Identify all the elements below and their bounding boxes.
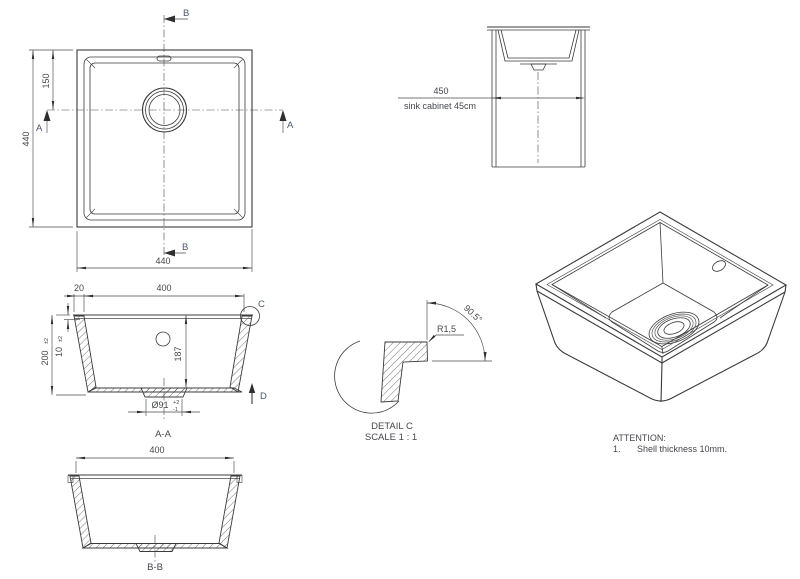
section-bb-view: 400 B-B	[68, 445, 242, 573]
iso-body	[536, 284, 786, 402]
dim-text-440-side: 440	[21, 131, 31, 146]
dim-text-400-aa: 400	[156, 283, 171, 293]
plan-corner-chamfers	[87, 60, 243, 218]
plan-outer-edge	[77, 50, 252, 227]
detail-radius-dim: R1,5	[428, 324, 464, 343]
detail-c-view: R1,5 90.5° DETAIL C SCALE 1 : 1	[335, 300, 492, 443]
detail-c-title: DETAIL C	[371, 421, 413, 432]
bb-drain-recess-section	[136, 544, 176, 552]
bb-dim-opening-400: 400	[76, 445, 234, 473]
detail-c-scale: SCALE 1 : 1	[365, 432, 417, 443]
section-arrow-icon	[280, 110, 287, 121]
section-marker-a-left: A	[36, 110, 51, 134]
section-label-a-right: A	[287, 120, 294, 131]
plan-rim-edge	[84, 57, 245, 220]
section-marker-b-bottom: B	[164, 242, 188, 257]
section-aa-title: A-A	[155, 429, 172, 440]
aa-right-wall-section	[230, 316, 252, 392]
dim-tol-10: ±2	[58, 336, 64, 342]
aa-dim-depth-187: 187	[173, 315, 187, 388]
cabinet-view: 450 sink cabinet 45cm	[398, 27, 590, 167]
attention-heading: ATTENTION:	[613, 433, 666, 443]
dim-text-20: 20	[74, 283, 84, 293]
iso-overflow-hole	[711, 259, 728, 274]
detail-c-letter: C	[258, 299, 265, 310]
section-arrow-icon	[164, 16, 175, 23]
cabinet-dim-450: 450 sink cabinet 45cm	[398, 86, 585, 111]
plan-dim-width-440: 440	[77, 229, 252, 272]
section-label-b-top: B	[183, 8, 189, 19]
aa-direction-d: D	[249, 383, 267, 404]
dim-text-10: 10	[54, 347, 64, 357]
dim-text-400-bb: 400	[149, 445, 164, 455]
dim-text-150: 150	[41, 73, 51, 88]
dim-text-drain-91: Ø91	[151, 400, 168, 410]
technical-drawing: B B A A 440	[0, 0, 800, 579]
section-marker-b-top: B	[164, 8, 189, 23]
section-label-b-bottom: B	[182, 242, 188, 253]
section-arrow-icon	[44, 110, 51, 121]
dim-text-450: 450	[433, 86, 448, 96]
bb-right-wall-section	[219, 476, 240, 548]
section-label-a-left: A	[36, 123, 43, 134]
bb-left-wall-section	[70, 476, 91, 548]
section-aa-view: 20 400 200 ±2 10 ±2	[40, 283, 267, 440]
dim-text-r15: R1,5	[437, 324, 456, 334]
plan-view: B B A A 440	[21, 8, 294, 272]
dim-tol-drain-minus: -1	[173, 407, 178, 413]
direction-arrow-icon	[249, 383, 255, 393]
section-bb-title: B-B	[147, 562, 163, 573]
attention-item-number: 1.	[613, 444, 621, 454]
aa-dim-opening-400: 400	[84, 283, 244, 312]
plan-bowl-opening	[90, 63, 239, 214]
isometric-view	[536, 212, 786, 402]
cabinet-sink-bowl	[498, 30, 579, 70]
dim-text-440-bottom: 440	[155, 256, 170, 266]
dim-text-187: 187	[173, 346, 183, 361]
attention-note: ATTENTION: 1. Shell thickness 10mm.	[613, 433, 727, 454]
dim-text-angle: 90.5°	[462, 303, 485, 325]
direction-d-letter: D	[260, 391, 267, 402]
iso-drain	[645, 306, 703, 350]
dim-tol-drain-plus: +2	[173, 400, 179, 406]
aa-overflow-hole	[156, 332, 170, 346]
detail-rim-section	[381, 342, 428, 402]
attention-item-text: Shell thickness 10mm.	[637, 444, 727, 454]
drawing-sheet: B B A A 440	[0, 0, 800, 579]
dim-tol-200: ±2	[44, 338, 50, 344]
aa-dim-shell-10: 10 ±2	[54, 303, 80, 357]
dim-text-200: 200	[40, 350, 50, 365]
plan-dim-offset-150: 150	[41, 50, 54, 110]
cabinet-caption: sink cabinet 45cm	[404, 101, 476, 111]
iso-bowl-wall-edges	[552, 223, 768, 355]
aa-left-wall-section	[74, 316, 96, 392]
section-marker-a-right: A	[280, 110, 295, 133]
